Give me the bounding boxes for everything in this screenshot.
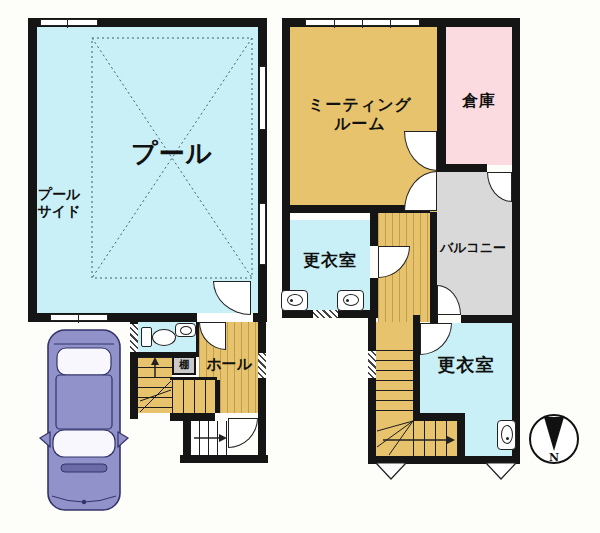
window-tick bbox=[362, 18, 363, 28]
washbasin-icon bbox=[337, 290, 364, 311]
window-tick bbox=[390, 18, 391, 28]
wall-balcony-bottom-stub bbox=[430, 315, 438, 323]
washbasin-icon bbox=[497, 420, 516, 450]
wall-changing-mid-bottom-a bbox=[282, 310, 313, 318]
opening-changing-mid bbox=[313, 310, 338, 318]
floor-plan: 棚 bbox=[0, 0, 600, 533]
window-garage-front bbox=[50, 314, 108, 321]
wall-entrance-bottom bbox=[180, 455, 268, 463]
meeting-room-label: ミーティング ルーム bbox=[287, 96, 433, 134]
washbasin-icon bbox=[175, 323, 196, 337]
hall-label: ホール bbox=[198, 356, 260, 374]
window-tick bbox=[78, 313, 79, 323]
wall-balcony-left bbox=[430, 212, 437, 315]
north-arrow-compass-icon: N bbox=[530, 415, 578, 464]
pool-label: プール bbox=[97, 138, 247, 169]
wall-changing-lower-notch-v bbox=[458, 415, 465, 460]
wall-storage-bottom bbox=[437, 164, 487, 172]
entrance-steps bbox=[190, 421, 228, 455]
wall-meeting-storage bbox=[437, 18, 446, 165]
toilet-bowl-icon bbox=[152, 329, 176, 346]
changing-lower-label: 更衣室 bbox=[414, 354, 518, 375]
balcony-label: バルコニー bbox=[427, 240, 519, 255]
window-pool-top bbox=[40, 19, 98, 26]
room-pool bbox=[37, 27, 258, 314]
vent-window-annex-left bbox=[130, 324, 138, 352]
wall-balcony-bottom bbox=[461, 315, 512, 323]
window-meeting-top bbox=[305, 19, 420, 26]
wall-changing-mid-right-a bbox=[370, 213, 378, 246]
storage-label: 倉庫 bbox=[446, 92, 512, 111]
poolside-label: プール サイド bbox=[28, 186, 90, 219]
wall-hall-right bbox=[258, 322, 266, 463]
window-pool-right-lower bbox=[259, 203, 266, 265]
wall-hall-stairs bbox=[215, 380, 220, 413]
wall-rb-bottom bbox=[368, 456, 520, 464]
wall-changing-mid-bottom-b bbox=[338, 310, 370, 318]
wall-rb-left-upper bbox=[282, 18, 290, 318]
door-arc-entrance bbox=[228, 418, 258, 448]
stairs-down-vertical-run bbox=[376, 350, 413, 412]
stairs-up-vertical-run bbox=[138, 357, 172, 413]
window-tick bbox=[334, 18, 335, 28]
shelf-label: 棚 bbox=[172, 359, 196, 371]
window-tick bbox=[67, 18, 68, 28]
compass-n-label: N bbox=[549, 451, 559, 464]
wall-pool-right bbox=[258, 18, 267, 322]
toilet-icon bbox=[141, 327, 152, 347]
wall-rb-left-lower bbox=[368, 318, 376, 464]
entry-mark-icon bbox=[376, 463, 516, 479]
washbasin-icon bbox=[281, 290, 308, 311]
wall-pool-left bbox=[28, 18, 37, 322]
vent-window-stairs bbox=[368, 351, 376, 378]
changing-middle-label: 更衣室 bbox=[290, 250, 370, 270]
stairs-up-horizontal-run bbox=[172, 380, 215, 413]
car-icon bbox=[40, 330, 128, 510]
wall-changing-mid-right-b bbox=[370, 278, 378, 318]
window-pool-right-upper bbox=[259, 66, 266, 130]
wall-hall-bottom bbox=[170, 413, 215, 421]
stairs-down-bottom-run bbox=[413, 421, 458, 456]
